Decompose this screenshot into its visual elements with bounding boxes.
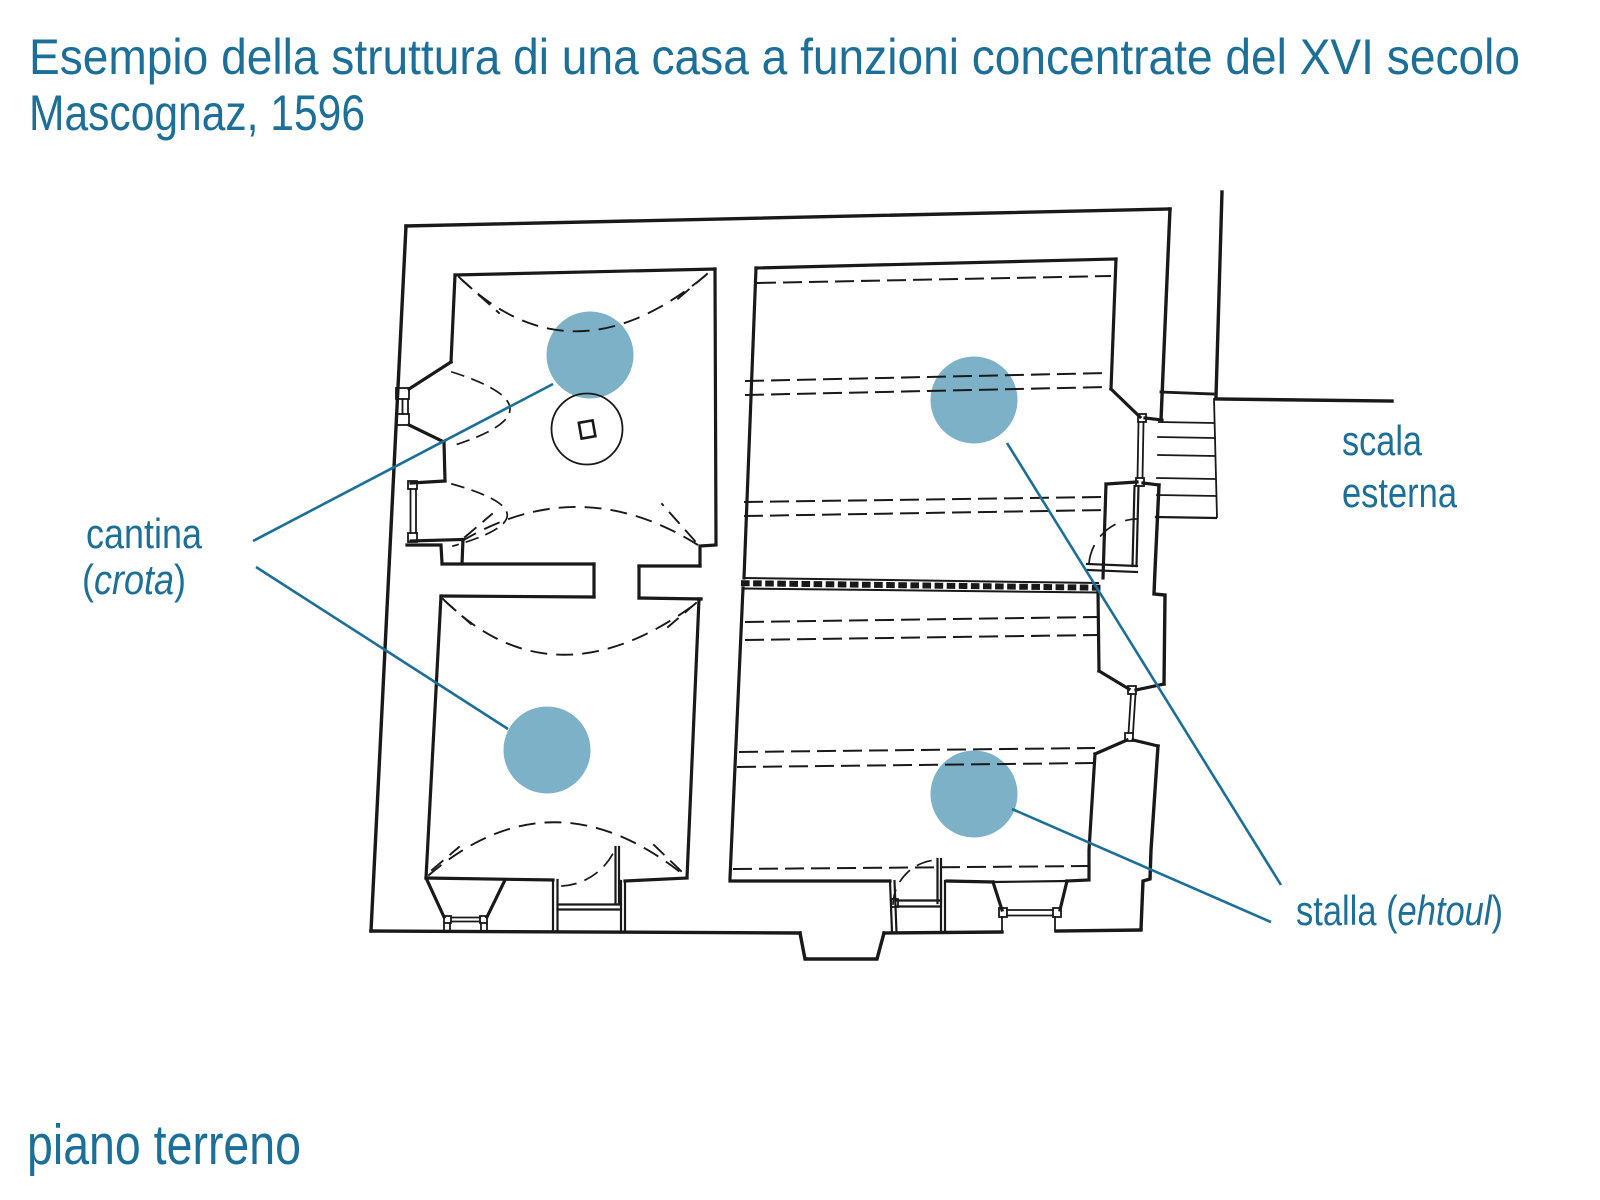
svg-text:scala: scala bbox=[1342, 417, 1423, 464]
svg-text:esterna: esterna bbox=[1342, 469, 1458, 516]
svg-text:cantina: cantina bbox=[86, 510, 203, 557]
svg-text:Esempio della struttura di una: Esempio della struttura di una casa a fu… bbox=[29, 29, 1520, 85]
svg-text:(crota): (crota) bbox=[82, 556, 186, 603]
svg-text:piano terreno: piano terreno bbox=[27, 1113, 301, 1177]
svg-text:stalla (ehtoul): stalla (ehtoul) bbox=[1296, 887, 1503, 934]
svg-text:Mascognaz, 1596: Mascognaz, 1596 bbox=[29, 85, 365, 141]
